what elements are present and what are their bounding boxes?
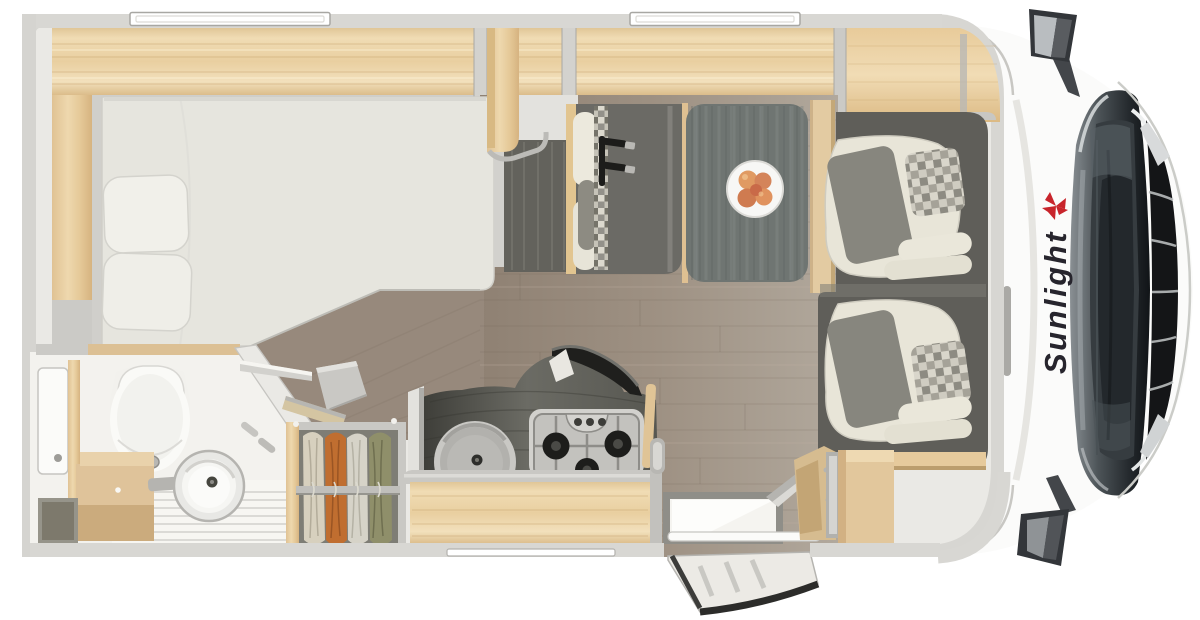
svg-text:Sunlight: Sunlight bbox=[1038, 230, 1073, 374]
